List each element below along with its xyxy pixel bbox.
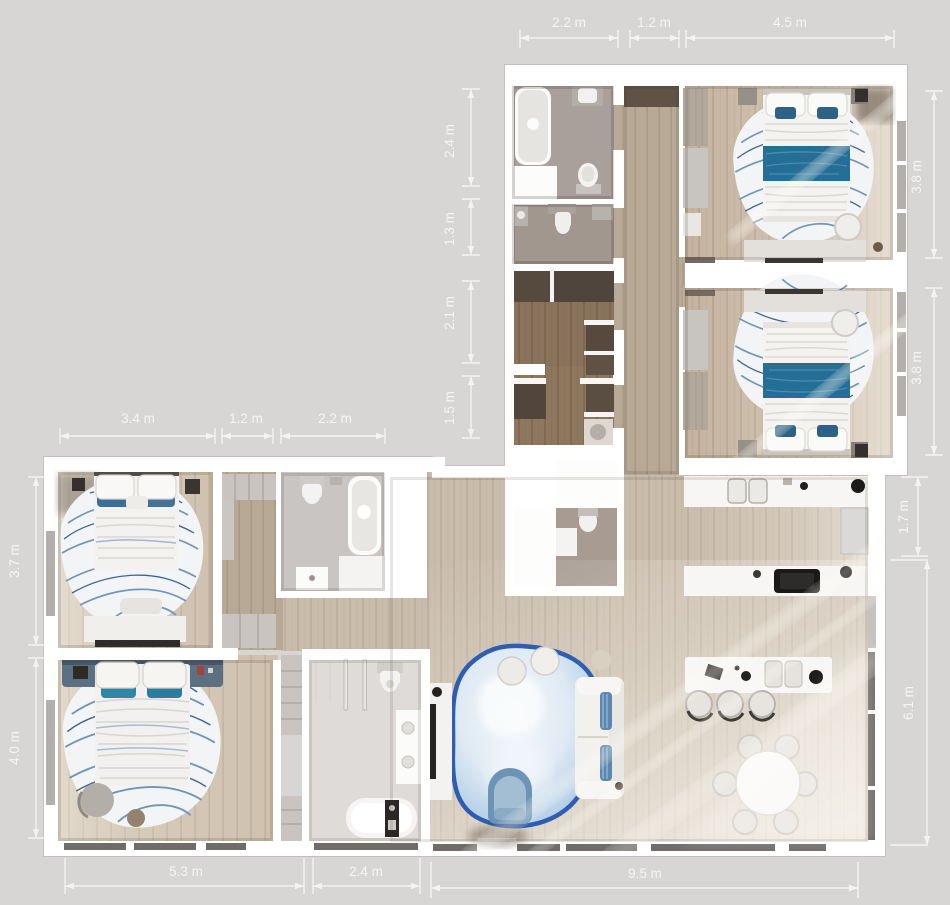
svg-text:1.7 m: 1.7 m	[896, 500, 911, 534]
svg-text:5.3 m: 5.3 m	[169, 864, 203, 879]
svg-text:4.0 m: 4.0 m	[7, 731, 22, 765]
svg-text:2.2 m: 2.2 m	[318, 411, 352, 426]
svg-text:2.1 m: 2.1 m	[442, 296, 457, 330]
svg-text:4.5 m: 4.5 m	[773, 15, 807, 30]
svg-text:2.2 m: 2.2 m	[552, 15, 586, 30]
svg-text:3.8 m: 3.8 m	[909, 351, 924, 385]
svg-text:9.5 m: 9.5 m	[628, 866, 662, 881]
svg-text:6.1 m: 6.1 m	[901, 686, 916, 720]
svg-text:2.4 m: 2.4 m	[349, 864, 383, 879]
svg-text:1.2 m: 1.2 m	[229, 411, 263, 426]
svg-text:3.4 m: 3.4 m	[121, 411, 155, 426]
svg-text:1.2 m: 1.2 m	[637, 15, 671, 30]
svg-text:3.8 m: 3.8 m	[909, 160, 924, 194]
svg-text:2.4 m: 2.4 m	[442, 124, 457, 158]
svg-text:3.7 m: 3.7 m	[7, 544, 22, 578]
svg-text:1.3 m: 1.3 m	[442, 212, 457, 246]
svg-text:1.5 m: 1.5 m	[442, 391, 457, 425]
